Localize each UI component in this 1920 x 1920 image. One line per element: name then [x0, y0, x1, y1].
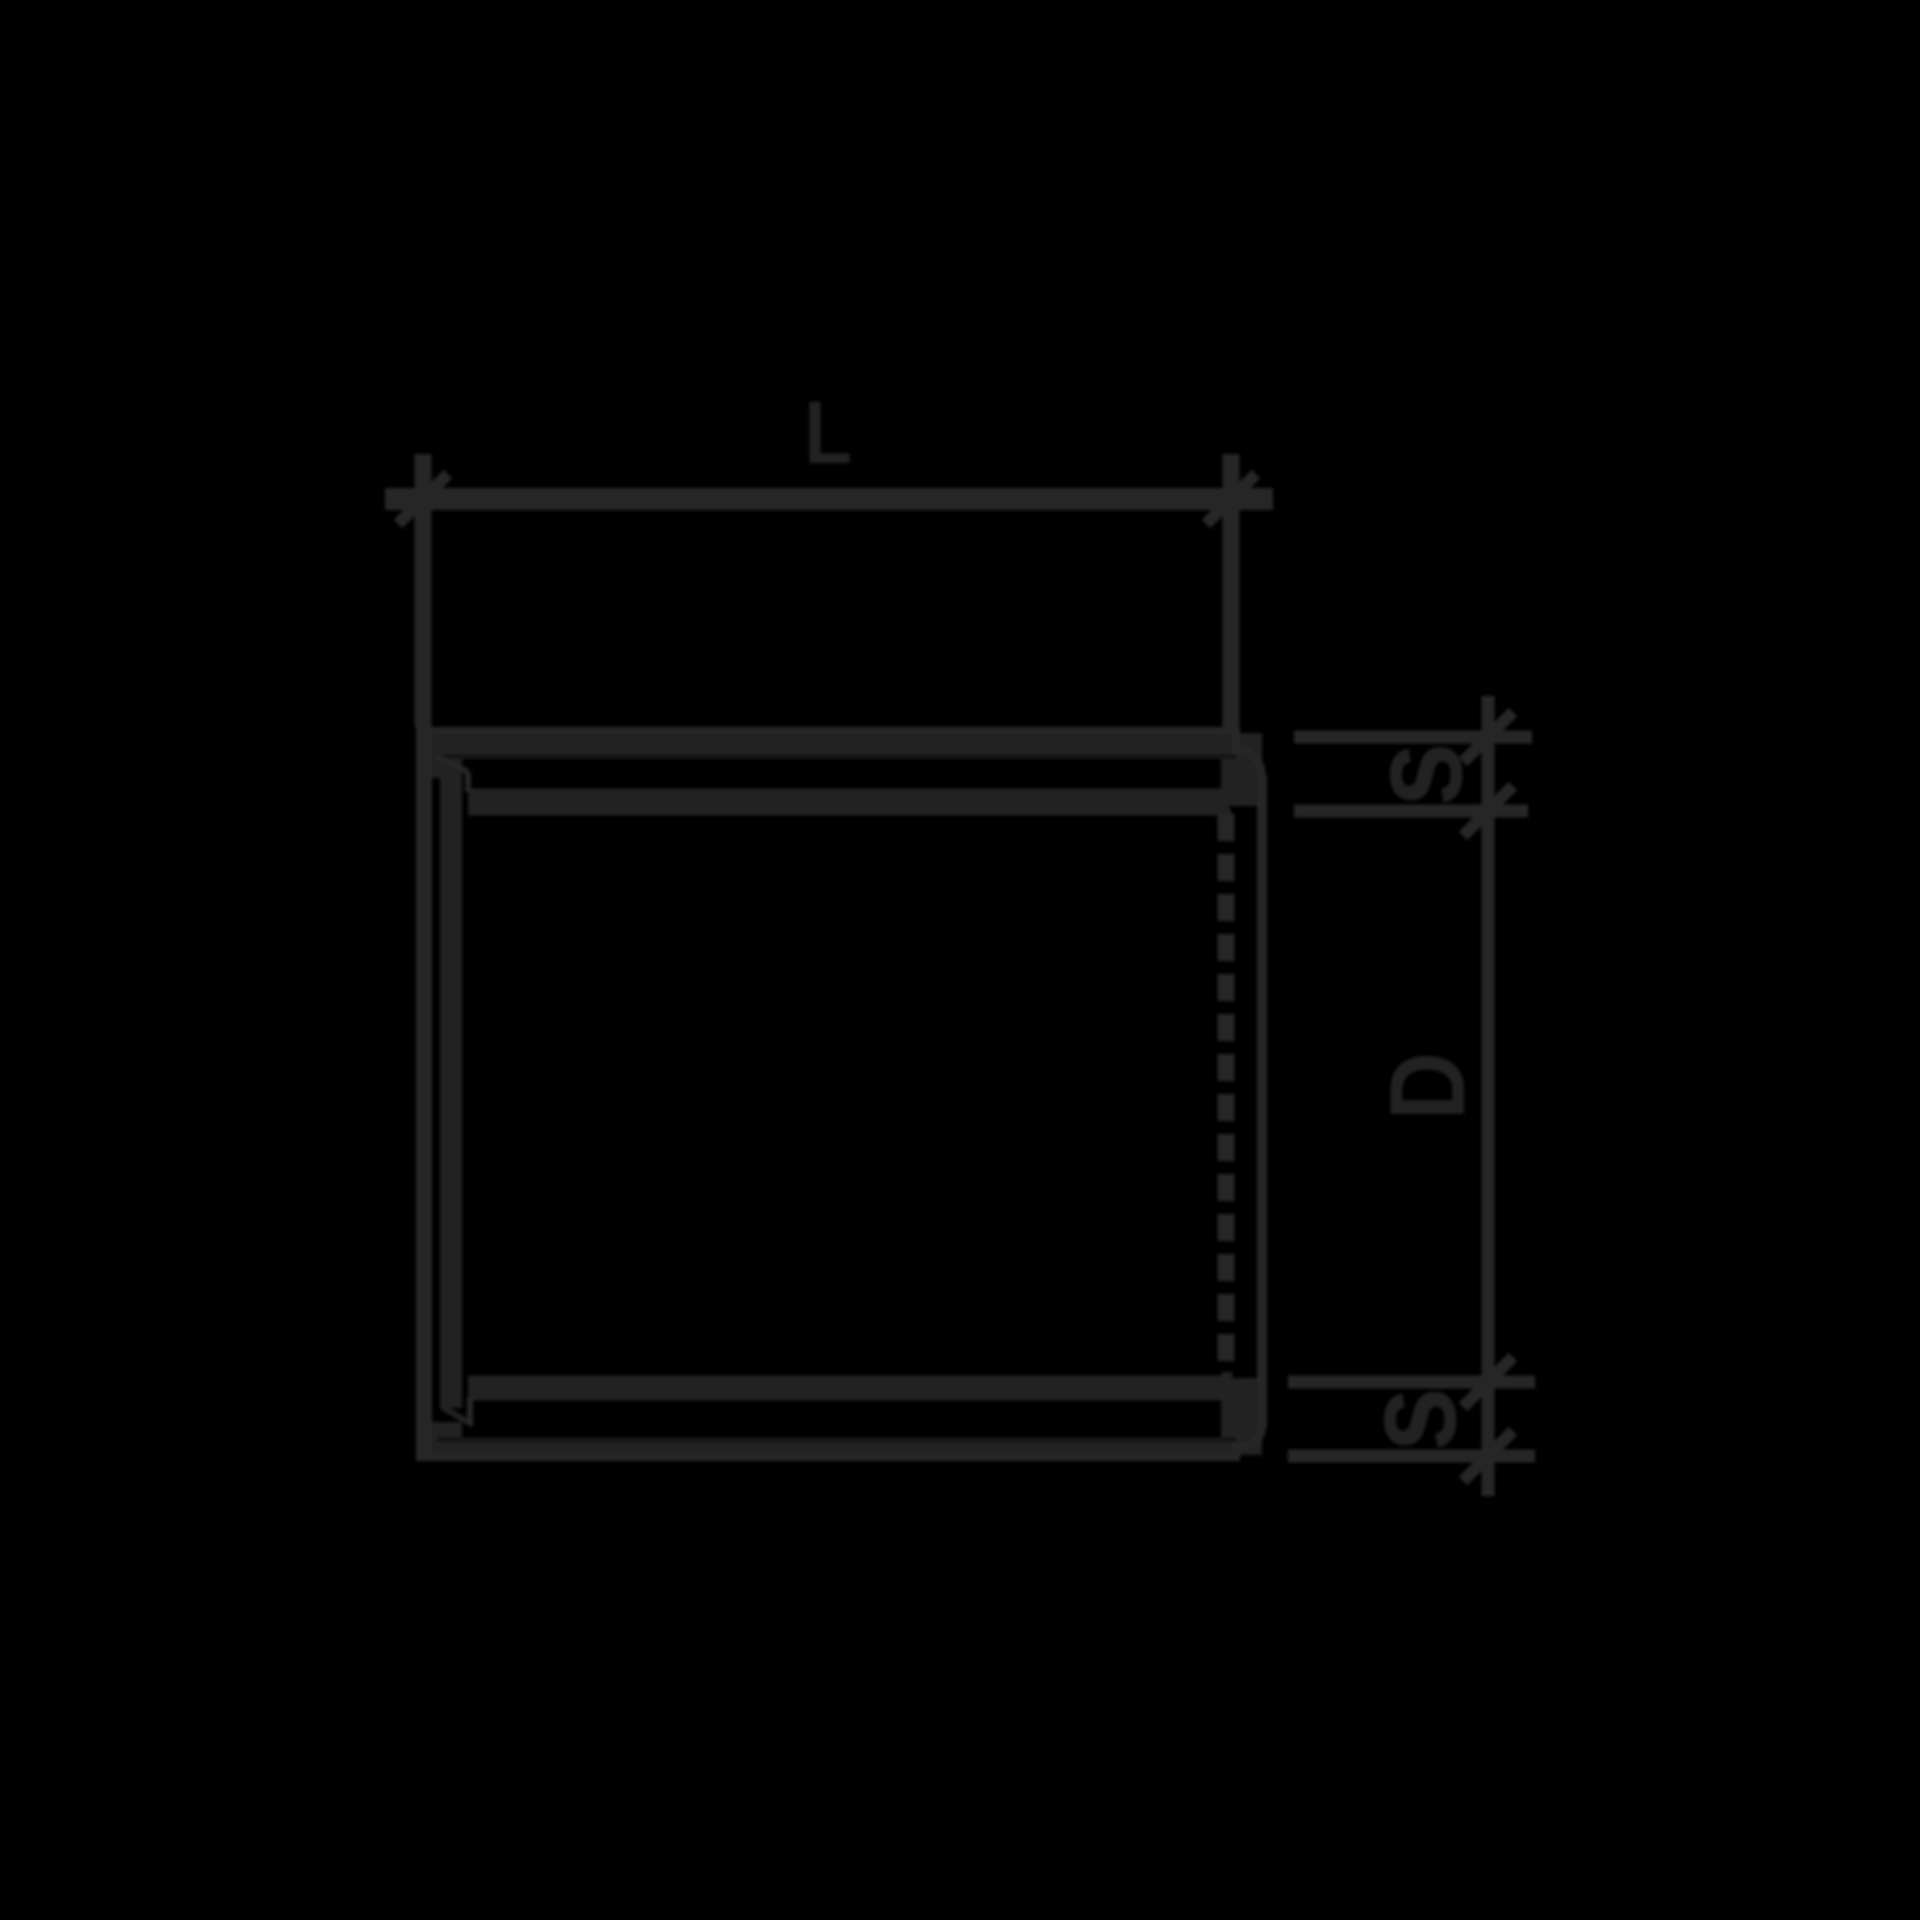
svg-text:s: s	[1342, 742, 1490, 807]
svg-text:s: s	[1336, 1387, 1484, 1452]
svg-text:L: L	[804, 382, 852, 482]
svg-text:D: D	[1368, 1052, 1487, 1120]
